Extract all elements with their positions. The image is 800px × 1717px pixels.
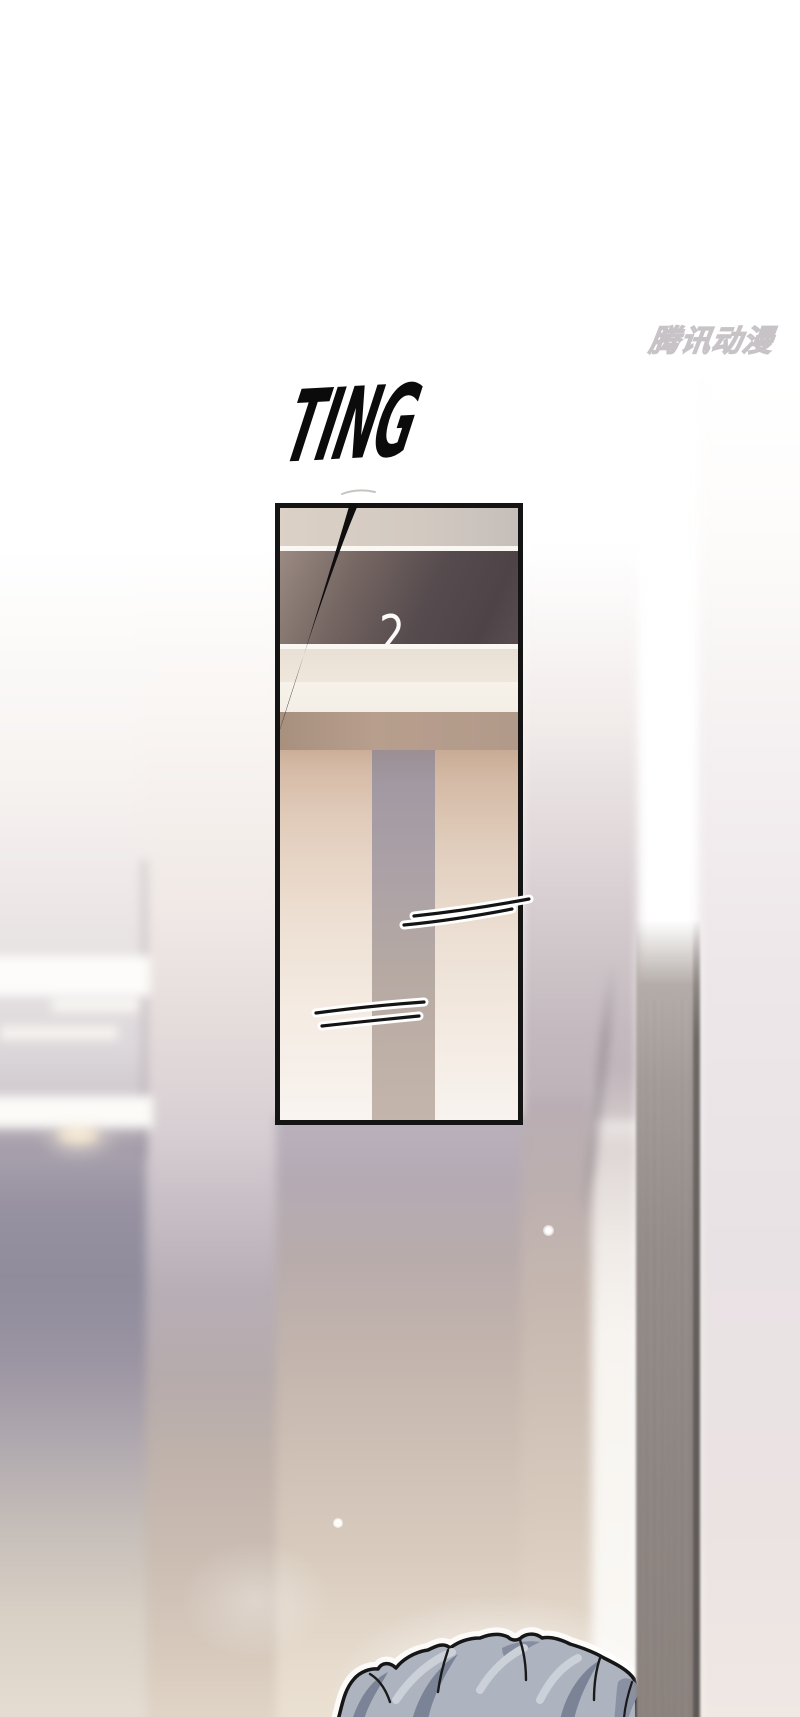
bokeh-dot [333, 1518, 343, 1528]
far-right-wall [698, 0, 800, 1717]
downlight-lamp [56, 1128, 100, 1145]
ceiling-band [0, 956, 150, 996]
right-upper-wall [521, 545, 638, 1120]
elevator-wall-top [280, 508, 518, 546]
elevator-panel: 2 [275, 503, 523, 1125]
bokeh-dot [543, 1225, 554, 1236]
elevator-lintel-upper [280, 649, 518, 682]
floor-indicator-display: 2 [280, 551, 518, 644]
soft-bokeh-glow [180, 1540, 330, 1660]
foreground-pillar [630, 920, 708, 1717]
elevator-lintel-light [280, 682, 518, 712]
tencent-comics-watermark: 腾讯动漫 [647, 316, 777, 360]
elevator-door-gap [372, 750, 435, 1120]
pillar-texture [636, 1000, 700, 1717]
ceiling-bar [52, 999, 140, 1012]
elevator-door-right [435, 750, 518, 1120]
hair-backlight-glow [318, 1590, 682, 1717]
sfx-ting-text: TING [278, 373, 427, 475]
elevator-door-left [280, 750, 372, 1120]
comic-page: 2 [0, 0, 800, 1717]
elevator-lintel-shadow [280, 712, 518, 750]
pillar-dark-edge [693, 920, 700, 1717]
ceiling-bar [0, 1026, 118, 1040]
